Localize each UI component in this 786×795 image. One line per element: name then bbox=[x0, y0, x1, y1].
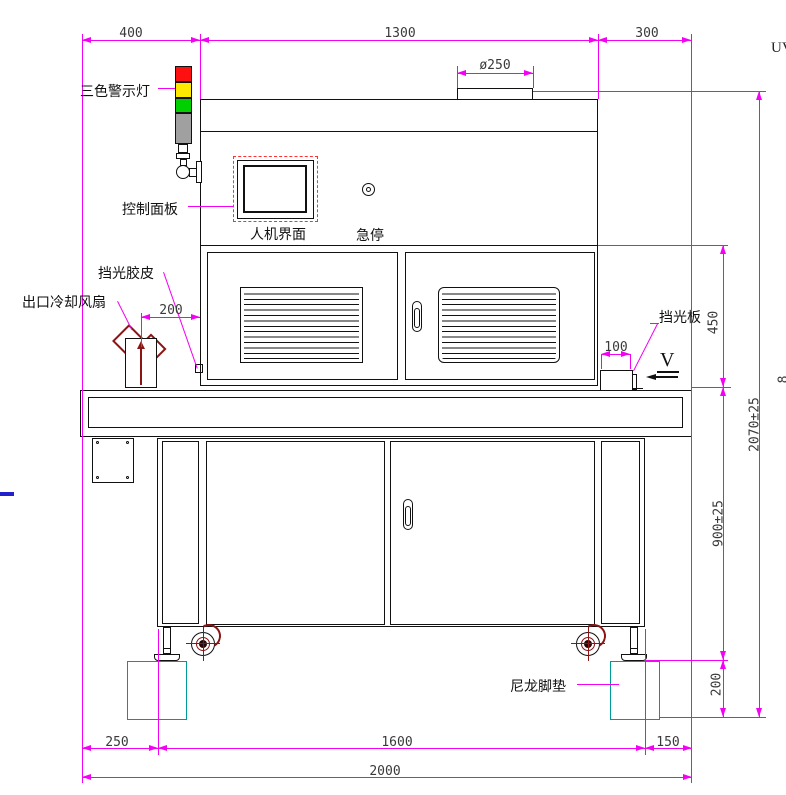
warning-light-base bbox=[175, 113, 192, 144]
warning-light-ball-joint bbox=[176, 165, 190, 179]
ext-line-y245 bbox=[598, 245, 728, 246]
arrow bbox=[200, 37, 209, 43]
table-beam-inner bbox=[88, 397, 683, 428]
arrow bbox=[191, 37, 200, 43]
technical-drawing: 400 1300 300 ø250 200 100 450 900±25 200… bbox=[0, 0, 786, 795]
arrow bbox=[636, 745, 645, 751]
right-foot-base bbox=[621, 654, 647, 661]
box-screw bbox=[126, 476, 129, 479]
arrow bbox=[598, 37, 607, 43]
label-outlet-fan: 出口冷却风扇 bbox=[22, 292, 106, 312]
lower-left-door bbox=[206, 441, 385, 625]
arrow bbox=[683, 774, 692, 780]
left-foot-screw-line bbox=[163, 648, 171, 649]
ext-line-duct-r bbox=[533, 66, 534, 88]
arrow bbox=[82, 774, 91, 780]
arrow bbox=[756, 91, 762, 100]
dim-250: 250 bbox=[100, 735, 134, 750]
fan-axis-line bbox=[140, 347, 142, 385]
lower-right-leg-panel bbox=[601, 441, 640, 624]
leader-nylon-pad bbox=[577, 684, 619, 685]
dim-300: 300 bbox=[622, 26, 672, 41]
upper-body-divider-line bbox=[200, 245, 598, 246]
hmi-screen bbox=[243, 165, 307, 213]
warning-light-green bbox=[175, 98, 192, 113]
dim-2070: 2070±25 bbox=[748, 389, 763, 461]
box-screw bbox=[96, 476, 99, 479]
right-vent-louver bbox=[438, 287, 560, 363]
dim-150: 150 bbox=[651, 735, 685, 750]
ext-line-x645 bbox=[645, 629, 646, 755]
label-light-plate: 挡光板 bbox=[659, 307, 701, 327]
left-foot-screw bbox=[163, 627, 171, 654]
arrow bbox=[720, 708, 726, 717]
light-plate-foot bbox=[632, 388, 643, 389]
ext-line-y660 bbox=[645, 660, 728, 661]
leader-warning-light bbox=[158, 88, 175, 89]
left-vent-louver bbox=[240, 287, 363, 363]
leader-light-rubber bbox=[163, 272, 198, 369]
blue-reference-line bbox=[0, 492, 14, 496]
arrow bbox=[682, 37, 691, 43]
lower-right-door bbox=[390, 441, 595, 625]
arrow bbox=[141, 314, 150, 320]
label-hmi: 人机界面 bbox=[250, 224, 306, 244]
box-screw bbox=[126, 441, 129, 444]
edge-fragment: 8 bbox=[777, 375, 786, 385]
arrow bbox=[149, 745, 158, 751]
label-warning-light: 三色警示灯 bbox=[80, 81, 150, 101]
right-foot-screw bbox=[630, 627, 638, 654]
dim-plate: 100 bbox=[599, 340, 633, 355]
warning-light-red bbox=[175, 66, 192, 82]
arrow bbox=[457, 70, 466, 76]
warning-light-bracket bbox=[196, 161, 202, 183]
lower-door-handle-grip bbox=[405, 506, 411, 526]
ext-line-left bbox=[82, 34, 83, 783]
dim-1300: 1300 bbox=[375, 26, 425, 41]
arrow bbox=[82, 37, 91, 43]
ext-line-y717 bbox=[660, 717, 766, 718]
upper-door-handle-grip bbox=[414, 308, 420, 328]
label-light-rubber: 挡光胶皮 bbox=[98, 263, 154, 283]
arrow bbox=[82, 745, 91, 751]
dim-line-duct bbox=[457, 73, 533, 74]
dim-line-right-inner bbox=[723, 245, 724, 717]
arrow bbox=[158, 745, 167, 751]
leader-control-panel bbox=[188, 206, 233, 207]
arrow bbox=[756, 708, 762, 717]
label-nylon-pad: 尼龙脚垫 bbox=[510, 676, 566, 696]
leader-light-plate bbox=[633, 324, 658, 372]
dim-400: 400 bbox=[106, 26, 156, 41]
arrow bbox=[720, 651, 726, 660]
dim-fan-gap: 200 bbox=[153, 303, 189, 318]
warning-light-yellow bbox=[175, 82, 192, 98]
light-plate-platform bbox=[600, 370, 633, 391]
label-control-panel: 控制面板 bbox=[122, 199, 178, 219]
machine-roof-band bbox=[200, 99, 598, 132]
ext-line-plate-r bbox=[630, 354, 631, 369]
arrow bbox=[524, 70, 533, 76]
view-marker-underline bbox=[657, 371, 679, 373]
label-estop: 急停 bbox=[356, 225, 384, 245]
arrow bbox=[720, 378, 726, 387]
box-screw bbox=[96, 441, 99, 444]
warning-light-neck1 bbox=[178, 144, 188, 153]
ext-line-x598 bbox=[598, 34, 599, 99]
uv-note: UV bbox=[771, 40, 786, 57]
ext-line-y91 bbox=[533, 91, 766, 92]
lower-left-leg-panel bbox=[162, 441, 199, 624]
view-arrow-shaft bbox=[655, 376, 678, 378]
dim-200-right: 200 bbox=[710, 665, 725, 705]
ext-line-right bbox=[691, 34, 692, 783]
dim-450: 450 bbox=[707, 303, 722, 343]
right-foot-screw-line bbox=[630, 648, 638, 649]
ext-line-x158 bbox=[158, 629, 159, 755]
dim-2000: 2000 bbox=[362, 764, 408, 779]
left-nylon-pad bbox=[127, 661, 187, 720]
arrow bbox=[191, 314, 200, 320]
ext-line-x200 bbox=[200, 34, 201, 99]
arrow bbox=[589, 37, 598, 43]
dim-duct: ø250 bbox=[470, 58, 520, 73]
leader-outlet-fan bbox=[117, 301, 132, 330]
estop-button-inner bbox=[366, 187, 371, 192]
right-nylon-pad bbox=[610, 661, 660, 720]
arrow bbox=[720, 387, 726, 396]
dim-900: 900±25 bbox=[712, 492, 727, 556]
arrow bbox=[720, 245, 726, 254]
view-marker-letter: V bbox=[660, 349, 674, 372]
dim-1600: 1600 bbox=[376, 735, 418, 750]
